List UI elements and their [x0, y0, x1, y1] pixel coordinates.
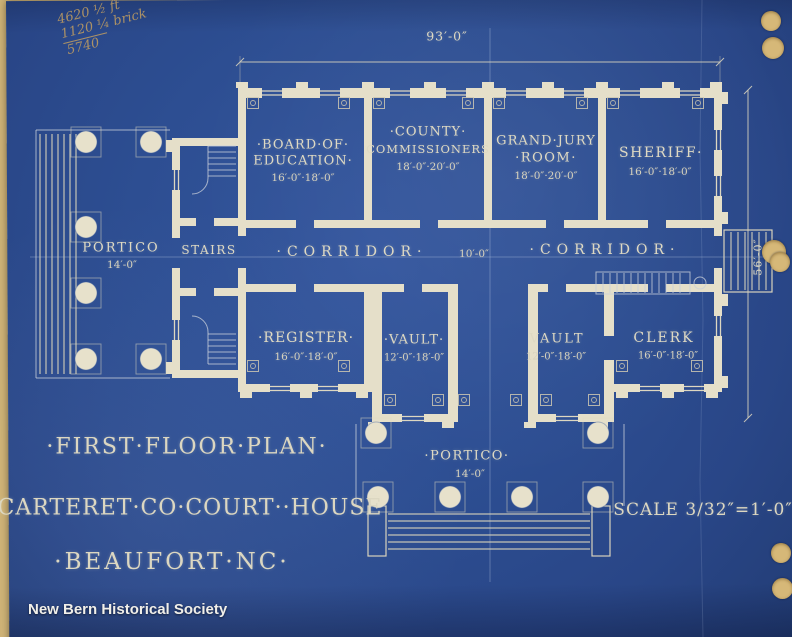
room-label-grand-jury: GRAND·JURY — [496, 134, 596, 149]
room-dims-board-of-education: 16′-0″·18′-0″ — [271, 172, 334, 184]
watermark: New Bern Historical Society — [28, 601, 227, 618]
room-label-stairs: STAIRS — [181, 243, 236, 257]
room-dims-vault-left: 12′-0″·18′-0″ — [384, 353, 444, 364]
room-label-county-commissioners-2: COMMISSIONERS — [366, 142, 490, 156]
room-label-sheriff: SHERIFF· — [619, 145, 703, 161]
punch-hole — [770, 252, 790, 272]
room-label-corridor-west: ·CORRIDOR· — [277, 244, 428, 260]
punch-hole — [772, 578, 792, 599]
room-dims-grand-jury: 18′-0″·20′-0″ — [514, 170, 577, 182]
blueprint-photo: 93′-0″ ·BOARD·OF· EDUCATION· 16′-0″·18′-… — [0, 0, 792, 637]
punch-hole — [761, 11, 781, 31]
room-dims-portico-bottom: 14′-0″ — [455, 468, 485, 480]
room-label-portico-bottom: ·PORTICO· — [424, 449, 509, 464]
room-label-portico-left: PORTICO — [82, 241, 159, 256]
room-dims-vault-right: 12′-0″·18′-0″ — [526, 352, 586, 363]
room-label-grand-jury-2: ·ROOM· — [515, 151, 577, 166]
room-label-vault-right: VAULT — [529, 332, 584, 347]
punch-hole — [762, 37, 784, 59]
room-dims-clerk: 16′-0″·18′-0″ — [638, 351, 698, 362]
dimension-lines — [236, 56, 752, 422]
title-beaufort-nc: ·BEAUFORT·NC· — [54, 549, 289, 575]
room-label-vault-left: ·VAULT· — [384, 333, 444, 348]
room-label-clerk: CLERK — [633, 330, 694, 346]
title-first-floor-plan: ·FIRST·FLOOR·PLAN· — [46, 435, 327, 460]
room-label-board-of-education: ·BOARD·OF· — [257, 138, 349, 153]
room-label-corridor-east: ·CORRIDOR· — [530, 242, 681, 258]
room-dims-portico-left: 14′-0″ — [107, 259, 137, 271]
column — [361, 418, 613, 512]
room-dims-register: 16′-0″·18′-0″ — [274, 351, 337, 363]
title-carteret-courthouse: CARTERET·CO·COURT··HOUSE — [0, 496, 382, 521]
scale-note: SCALE 3/32″=1′-0″ — [613, 500, 792, 520]
room-dims-county-commissioners: 18′-0″·20′-0″ — [396, 161, 459, 173]
floor-plan-drawing — [0, 0, 792, 637]
room-dims-vestibule: 10′-0″ — [459, 248, 489, 260]
room-dims-sheriff: 16′-0″·18′-0″ — [628, 166, 691, 178]
punch-hole — [771, 543, 791, 563]
dimension-top-label: 93′-0″ — [426, 29, 468, 44]
room-label-county-commissioners: ·COUNTY· — [390, 125, 466, 140]
room-label-board-of-education-2: EDUCATION· — [253, 154, 352, 169]
room-label-register: ·REGISTER· — [258, 330, 354, 346]
